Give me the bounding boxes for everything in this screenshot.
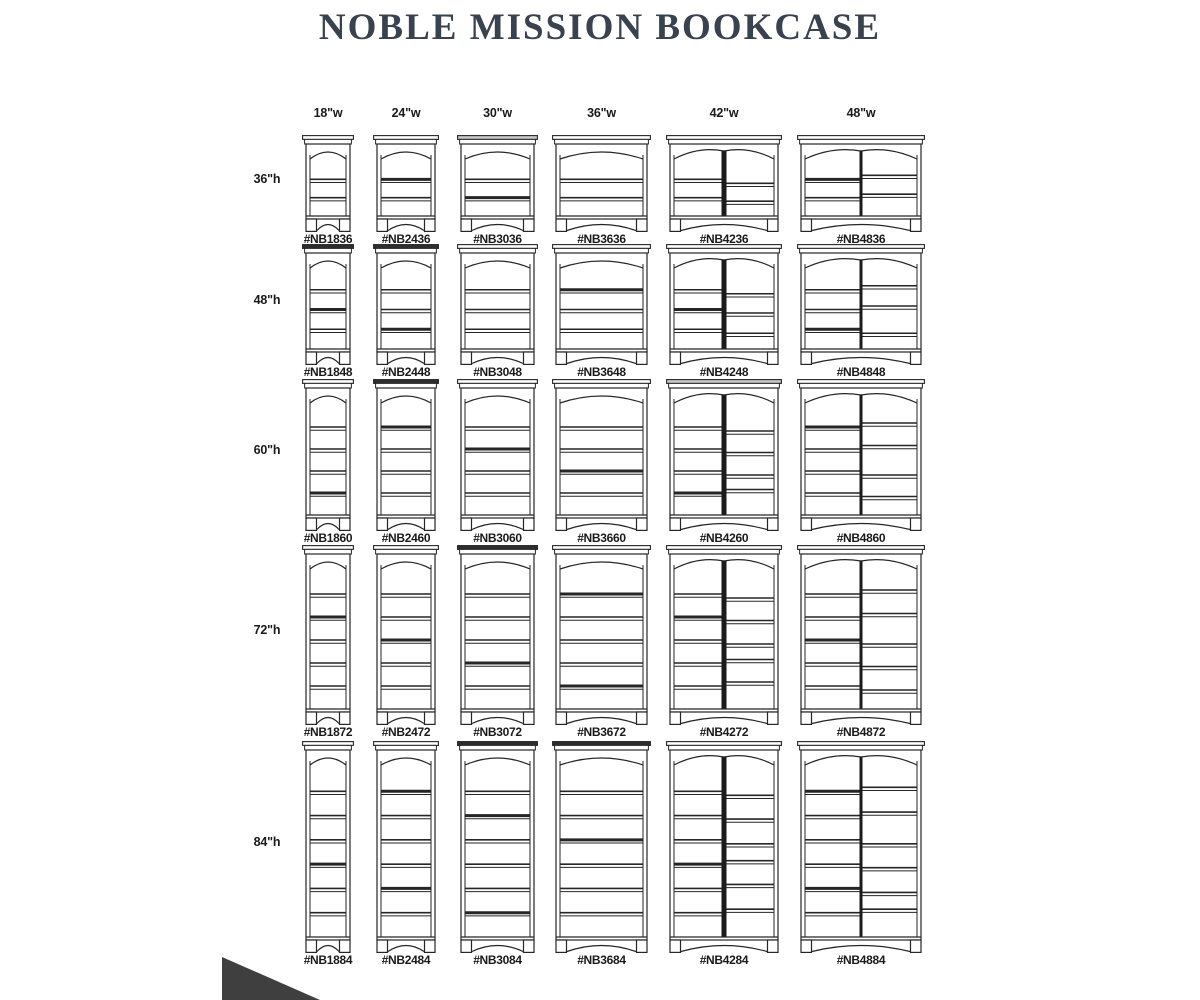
- bookcase-cell: #NB3672: [552, 545, 651, 739]
- model-number: #NB2460: [373, 531, 439, 545]
- bookcase-drawing: [302, 545, 354, 725]
- bookcase-cell: #NB4260: [666, 379, 782, 545]
- bookcase-cell: #NB3048: [457, 244, 538, 379]
- bookcase-cell: #NB2460: [373, 379, 439, 545]
- page-title: NOBLE MISSION BOOKCASE: [0, 6, 1200, 49]
- bookcase-drawing: [552, 545, 651, 725]
- bookcase-cell: #NB4248: [666, 244, 782, 379]
- bookcase-cell: #NB4848: [797, 244, 925, 379]
- column-header-width: 36"w: [552, 106, 651, 120]
- column-header-width: 24"w: [373, 106, 439, 120]
- column-header-width: 18"w: [302, 106, 354, 120]
- bookcase-drawing: [373, 741, 439, 953]
- model-number: #NB4260: [666, 531, 782, 545]
- bookcase-drawing: [457, 545, 538, 725]
- bookcase-cell: #NB4272: [666, 545, 782, 739]
- bookcase-cell: #NB3036: [457, 135, 538, 246]
- bookcase-drawing: [302, 135, 354, 232]
- model-number: #NB4860: [797, 531, 925, 545]
- bookcase-drawing: [666, 545, 782, 725]
- bookcase-drawing: [373, 545, 439, 725]
- bookcase-drawing: [552, 135, 651, 232]
- bookcase-drawing: [457, 379, 538, 531]
- bookcase-cell: #NB4284: [666, 741, 782, 967]
- column-header-width: 30"w: [457, 106, 538, 120]
- bookcase-drawing: [373, 244, 439, 365]
- row-label-height: 72"h: [236, 623, 298, 637]
- bookcase-cell: #NB2472: [373, 545, 439, 739]
- model-number: #NB4272: [666, 725, 782, 739]
- model-number: #NB3660: [552, 531, 651, 545]
- bookcase-cell: #NB1884: [302, 741, 354, 967]
- bookcase-drawing: [457, 244, 538, 365]
- model-number: #NB3084: [457, 953, 538, 967]
- model-number: #NB2484: [373, 953, 439, 967]
- bookcase-cell: #NB3060: [457, 379, 538, 545]
- bookcase-cell: #NB4884: [797, 741, 925, 967]
- bookcase-drawing: [797, 135, 925, 232]
- row-label-height: 36"h: [236, 172, 298, 186]
- bookcase-drawing: [457, 135, 538, 232]
- model-number: #NB3672: [552, 725, 651, 739]
- bookcase-cell: #NB1872: [302, 545, 354, 739]
- bookcase-drawing: [552, 379, 651, 531]
- bookcase-drawing: [666, 244, 782, 365]
- bookcase-cell: #NB3660: [552, 379, 651, 545]
- model-number: #NB4284: [666, 953, 782, 967]
- row-label-height: 60"h: [236, 443, 298, 457]
- bookcase-drawing: [797, 545, 925, 725]
- model-number: #NB3648: [552, 365, 651, 379]
- bookcase-drawing: [373, 135, 439, 232]
- bookcase-drawing: [457, 741, 538, 953]
- bookcase-cell: #NB2436: [373, 135, 439, 246]
- bookcase-drawing: [666, 741, 782, 953]
- column-header-width: 48"w: [797, 106, 925, 120]
- model-number: #NB4248: [666, 365, 782, 379]
- model-number: #NB4848: [797, 365, 925, 379]
- catalog-page: NOBLE MISSION BOOKCASE 18"w24"w30"w36"w4…: [0, 0, 1200, 1000]
- bookcase-cell: #NB3648: [552, 244, 651, 379]
- model-number: #NB1860: [302, 531, 354, 545]
- bookcase-drawing: [302, 244, 354, 365]
- model-number: #NB1872: [302, 725, 354, 739]
- bookcase-cell: #NB3636: [552, 135, 651, 246]
- bookcase-cell: #NB2448: [373, 244, 439, 379]
- bookcase-cell: #NB4236: [666, 135, 782, 246]
- bookcase-drawing: [302, 379, 354, 531]
- model-number: #NB3048: [457, 365, 538, 379]
- bookcase-cell: #NB3084: [457, 741, 538, 967]
- bookcase-cell: #NB4872: [797, 545, 925, 739]
- bookcase-cell: #NB3072: [457, 545, 538, 739]
- model-number: #NB1884: [302, 953, 354, 967]
- bookcase-drawing: [797, 379, 925, 531]
- bookcase-cell: #NB2484: [373, 741, 439, 967]
- model-number: #NB1848: [302, 365, 354, 379]
- bookcase-cell: #NB4860: [797, 379, 925, 545]
- column-header-width: 42"w: [666, 106, 782, 120]
- row-label-height: 84"h: [236, 835, 298, 849]
- model-number: #NB3072: [457, 725, 538, 739]
- row-label-height: 48"h: [236, 293, 298, 307]
- model-number: #NB2472: [373, 725, 439, 739]
- bookcase-cell: #NB1836: [302, 135, 354, 246]
- bookcase-cell: #NB1860: [302, 379, 354, 545]
- bookcase-cell: #NB4836: [797, 135, 925, 246]
- bookcase-drawing: [797, 741, 925, 953]
- bookcase-drawing: [373, 379, 439, 531]
- model-number: #NB3060: [457, 531, 538, 545]
- bookcase-cell: #NB1848: [302, 244, 354, 379]
- bookcase-drawing: [552, 244, 651, 365]
- bookcase-drawing: [666, 135, 782, 232]
- bookcase-cell: #NB3684: [552, 741, 651, 967]
- bookcase-drawing: [797, 244, 925, 365]
- model-number: #NB4884: [797, 953, 925, 967]
- bookcase-drawing: [666, 379, 782, 531]
- bookcase-drawing: [302, 741, 354, 953]
- model-number: #NB2448: [373, 365, 439, 379]
- model-number: #NB3684: [552, 953, 651, 967]
- model-number: #NB4872: [797, 725, 925, 739]
- bookcase-drawing: [552, 741, 651, 953]
